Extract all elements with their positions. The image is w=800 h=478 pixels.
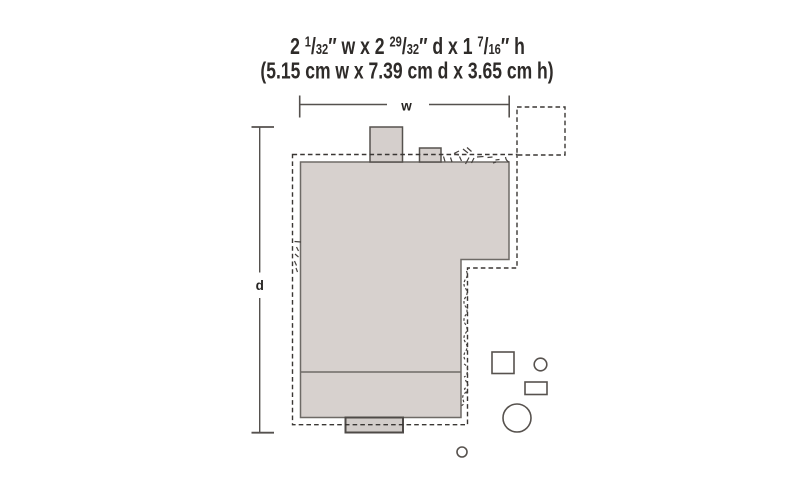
svg-text:w: w — [400, 99, 412, 114]
svg-text:(5.15 cm w x 7.39 cm d x 3.65: (5.15 cm w x 7.39 cm d x 3.65 cm h) — [260, 58, 553, 84]
svg-text:d: d — [256, 278, 264, 293]
